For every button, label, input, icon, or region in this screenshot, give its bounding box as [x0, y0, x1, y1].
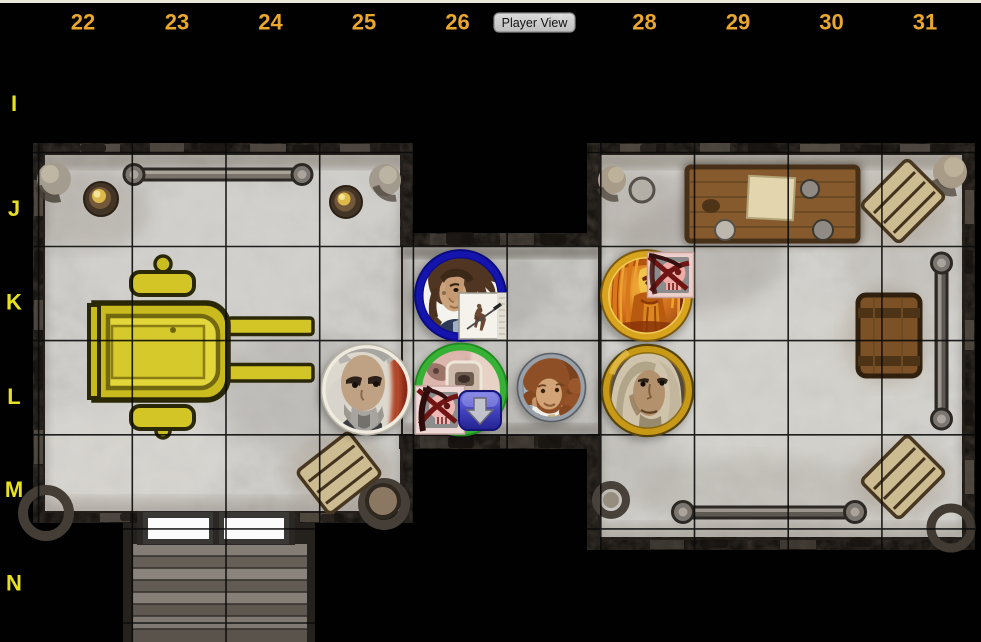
svg-text:M: M	[5, 477, 23, 502]
svg-text:22: 22	[71, 10, 95, 35]
svg-text:K: K	[6, 290, 22, 315]
svg-text:J: J	[8, 196, 20, 221]
svg-text:Player View: Player View	[502, 16, 569, 30]
svg-text:30: 30	[819, 10, 843, 35]
svg-text:26: 26	[445, 10, 469, 35]
svg-text:23: 23	[165, 10, 189, 35]
svg-text:28: 28	[632, 10, 656, 35]
svg-text:24: 24	[258, 10, 283, 35]
svg-text:29: 29	[726, 10, 750, 35]
svg-text:N: N	[6, 571, 22, 596]
svg-text:I: I	[11, 91, 17, 116]
svg-text:L: L	[7, 384, 20, 409]
svg-text:25: 25	[352, 10, 376, 35]
svg-text:31: 31	[913, 10, 937, 35]
